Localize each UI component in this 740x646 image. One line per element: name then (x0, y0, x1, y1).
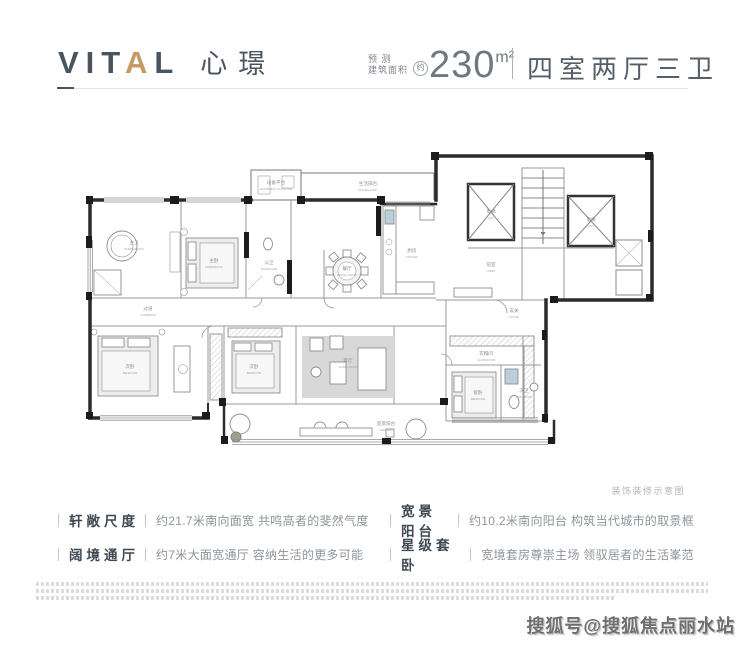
feature-item-3: 宽景阳台 约10.2米南向阳台 构筑当代城市的取景框 (390, 509, 694, 531)
area-prefix-line2: 建筑面积 (368, 65, 408, 76)
svg-text:DINING ROOM: DINING ROOM (337, 273, 357, 277)
logo-part2: L (154, 45, 180, 80)
room-label-veranda: 宽景阳台 (377, 420, 396, 427)
room-label-life-balcony: 生活阳台 (359, 180, 378, 187)
header-rule-accent (57, 87, 74, 89)
disclaimer-text-line (36, 589, 708, 593)
room-label-bath-public: 公卫 (264, 260, 274, 265)
svg-text:BATHROOM: BATHROOM (261, 267, 278, 271)
svg-text:M.BATHROOM: M.BATHROOM (124, 247, 144, 251)
disclaimer-fine-print (36, 582, 708, 603)
room-label-master-bed-up: 主卧 (209, 257, 219, 264)
feature-desc: 约7米大面宽通厅 容纳生活的更多可能 (156, 546, 363, 563)
watermark-text: 搜狐号@搜狐焦点丽水站 (526, 612, 735, 638)
feature-divider (58, 548, 59, 561)
feature-divider (145, 514, 146, 527)
sink-icon (530, 383, 538, 391)
feature-divider (58, 514, 59, 527)
room-label-equipment: 设备平台 (267, 179, 286, 186)
svg-text:LIVING ROOM: LIVING ROOM (339, 365, 358, 369)
staircase (522, 168, 564, 248)
toilet-icon (264, 238, 273, 250)
plan-caption: 装饰装修示意图 (611, 484, 685, 497)
kitchen-sink-icon (385, 210, 394, 224)
feature-divider (390, 548, 391, 561)
feature-term: 轩敞尺度 (69, 510, 139, 530)
svg-text:BEDROOM: BEDROOM (471, 397, 486, 401)
svg-text:VERANDA: VERANDA (379, 428, 393, 432)
bed-icon (452, 372, 496, 418)
area-prefix-line1: 预 测 (368, 54, 402, 65)
disclaimer-text-line (36, 582, 708, 586)
feature-divider (145, 548, 146, 561)
feature-desc: 约10.2米南向阳台 构筑当代城市的取景框 (469, 512, 694, 529)
plant-icon (231, 432, 241, 442)
room-label-lift2: 电梯 (586, 216, 596, 223)
area-prefix: 预 测 建筑面积 (368, 54, 408, 76)
brand-logo-cn: 心璟 (200, 42, 276, 81)
bed-icon (91, 329, 165, 396)
svg-text:BEDROOM: BEDROOM (123, 371, 138, 375)
room-label-lift1: 电梯 (486, 208, 496, 215)
header-rule (57, 88, 688, 89)
wardrobe-icon (210, 334, 222, 400)
room-label-lobby: 前室 (486, 261, 496, 268)
svg-text:LIFT: LIFT (588, 224, 594, 228)
svg-text:EQUIPMENT PLATFORM: EQUIPMENT PLATFORM (260, 187, 293, 191)
svg-text:KITCHEN: KITCHEN (406, 255, 418, 259)
room-label-master-bath: 主卫 (129, 239, 139, 245)
logo-accent-letter: A (125, 45, 154, 80)
feature-item-4: 星级套卧 宽境套房尊崇主场 领驭居者的生活峯范 (390, 543, 694, 565)
svg-text:FOYER: FOYER (509, 315, 519, 319)
svg-text:BATHROOM: BATHROOM (516, 395, 533, 399)
feature-item-2: 阔境通厅 约7米大面宽通厅 容纳生活的更多可能 (58, 543, 390, 565)
svg-text:LIFE BALCONY: LIFE BALCONY (358, 188, 378, 192)
room-label-suite-bath: 次卫 (519, 387, 529, 394)
area-info: 预 测 建筑面积 约 230 m² (368, 47, 514, 83)
svg-text:CORRIDOR: CORRIDOR (140, 313, 155, 317)
sink-icon (274, 275, 284, 285)
room-label-suite-bed: 套卧 (473, 389, 483, 396)
furniture (91, 206, 538, 442)
logo-part1: VIT (58, 45, 125, 80)
room-label-cloakroom: 衣帽间 (479, 350, 493, 357)
wardrobe-icon (524, 346, 534, 418)
area-value: 230 (429, 47, 495, 83)
feature-divider (470, 548, 471, 561)
balcony-furniture (230, 414, 426, 442)
room-label-kitchen: 厨房 (407, 247, 417, 254)
feature-term: 阔境通厅 (69, 544, 139, 564)
wardrobe-icon (450, 336, 534, 346)
brand-logo: VITAL 心璟 (58, 42, 276, 81)
approx-circle-badge: 约 (413, 61, 428, 76)
room-label-living: 客厅 (343, 357, 353, 364)
room-layout-text: 四室两厅三卫 (527, 49, 719, 86)
room-label-bedroom2: 次卧 (125, 363, 135, 370)
brand-logo-en: VITAL (58, 45, 180, 81)
shower-icon (505, 369, 518, 384)
feature-divider (390, 514, 391, 527)
room-label-bedroom3: 次卧 (249, 363, 259, 370)
floor-plan: 主卫 M.BATHROOM 主卧 M.BEDROOM 公卫 BATHROOM 设… (86, 140, 664, 484)
feature-divider (458, 514, 459, 527)
disclaimer-text-line (36, 596, 614, 600)
equipment-platform (251, 170, 434, 200)
svg-text:LIFT: LIFT (488, 216, 494, 220)
feature-desc: 宽境套房尊崇主场 领驭居者的生活峯范 (481, 546, 694, 563)
svg-text:LOBBY: LOBBY (486, 269, 495, 273)
dining-table-icon (326, 250, 368, 292)
svg-text:BEDROOM: BEDROOM (247, 371, 262, 375)
core-block (468, 168, 642, 295)
room-label-corridor: 过道 (143, 305, 153, 312)
wardrobe-icon (228, 328, 282, 337)
header-vertical-divider (512, 48, 513, 79)
svg-text:M.BEDROOM: M.BEDROOM (205, 265, 223, 269)
floorplan-poster: VITAL 心璟 预 测 建筑面积 约 230 m² 四室两厅三卫 (0, 0, 740, 646)
feature-item-1: 轩敞尺度 约21.7米南向面宽 共鸣高者的斐然气度 (58, 509, 390, 531)
feature-desc: 约21.7米南向面宽 共鸣高者的斐然气度 (156, 512, 369, 529)
room-label-dining: 餐厅 (342, 265, 352, 272)
svg-text:CLOAKROOM: CLOAKROOM (477, 358, 496, 362)
feature-list: 轩敞尺度 约21.7米南向面宽 共鸣高者的斐然气度 宽景阳台 约10.2米南向阳… (58, 509, 694, 565)
feature-term: 星级套卧 (401, 534, 464, 574)
room-label-foyer: 玄关 (509, 307, 519, 314)
